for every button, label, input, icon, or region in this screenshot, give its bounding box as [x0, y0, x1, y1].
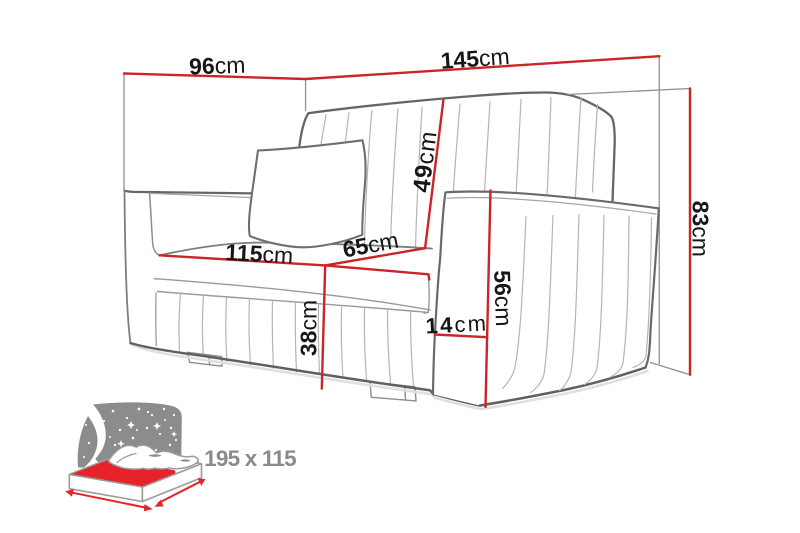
svg-text:195 x 115: 195 x 115	[204, 446, 296, 471]
svg-text:145cm: 145cm	[440, 43, 511, 74]
svg-text:14cm: 14cm	[425, 310, 489, 338]
svg-text:83cm: 83cm	[688, 201, 714, 257]
svg-text:38cm: 38cm	[296, 300, 322, 356]
svg-text:115cm: 115cm	[225, 239, 294, 269]
svg-text:96cm: 96cm	[189, 52, 246, 80]
svg-text:56cm: 56cm	[489, 270, 517, 327]
